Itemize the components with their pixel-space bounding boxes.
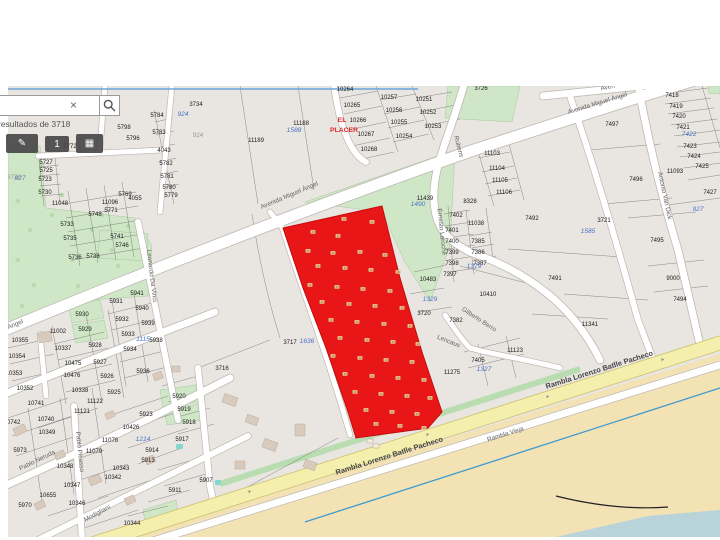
parcel-number: 7425: [695, 164, 709, 170]
map-label: 1490: [411, 201, 426, 208]
parcel-number: 11105: [492, 178, 508, 184]
parcel-number: 7400: [445, 239, 459, 245]
tree-marker: 49: [306, 249, 311, 253]
svg-text:49: 49: [373, 304, 377, 308]
tree-marker: 49: [316, 264, 321, 268]
parcel-number: 5723: [38, 177, 52, 183]
svg-text:49: 49: [410, 360, 414, 364]
parcel-number: 10347: [64, 483, 81, 489]
map-label: 927: [692, 206, 703, 213]
svg-text:49: 49: [343, 266, 347, 270]
tree: [16, 258, 20, 262]
tree-marker: 49: [353, 390, 358, 394]
tree-marker: 49: [373, 304, 378, 308]
parcel-number: 10346: [69, 501, 86, 507]
parcel-number: 5941: [130, 291, 144, 297]
building: [295, 424, 305, 436]
parcel-number: 7420: [672, 114, 686, 120]
parcel-number: 10337: [55, 346, 72, 352]
parcel-number: 11103: [484, 151, 500, 157]
parcel-number: 9000: [666, 276, 680, 282]
svg-text:49: 49: [355, 320, 359, 324]
svg-text:49: 49: [353, 390, 357, 394]
parcel-number: 4043: [157, 148, 171, 154]
svg-text:49: 49: [331, 354, 335, 358]
parcel-number: 11096: [102, 200, 119, 206]
building: [172, 366, 180, 372]
svg-text:49: 49: [422, 378, 426, 382]
parcel-number: 5779: [164, 193, 178, 199]
parcel-number: 5735: [63, 236, 77, 242]
tree-marker: 49: [384, 358, 389, 362]
tree-marker: 49: [355, 320, 360, 324]
parcel-number: 11121: [74, 409, 90, 415]
tree-marker: 49: [400, 306, 405, 310]
parcel-number: 5796: [126, 136, 140, 142]
tree: [32, 283, 36, 287]
parcel-number: 5781: [160, 174, 174, 180]
map-label: 7422: [682, 131, 697, 138]
parcel-number: 10342: [105, 475, 122, 481]
svg-text:49: 49: [415, 412, 419, 416]
svg-text:49: 49: [311, 230, 315, 234]
tree-marker: 49: [365, 338, 370, 342]
svg-text:49: 49: [396, 270, 400, 274]
parcel-number: 11123: [507, 348, 523, 354]
parcel-number: 7386: [471, 250, 485, 256]
tree: [50, 213, 54, 217]
parcel-number: 5936: [136, 369, 150, 375]
parcel-number: 3716: [215, 366, 229, 372]
map-label: EL: [338, 117, 347, 124]
tree-marker: 49: [358, 250, 363, 254]
parcel-number: 10410: [480, 292, 497, 298]
parcel-number: 11038: [468, 221, 485, 227]
svg-text:49: 49: [358, 250, 362, 254]
tree-marker: 49: [391, 340, 396, 344]
svg-text:49: 49: [331, 251, 335, 255]
tree-marker: 49: [382, 322, 387, 326]
map-container[interactable]: 4949494949494949494949494949494949494949…: [8, 86, 720, 537]
search-button[interactable]: [99, 95, 120, 116]
tree-marker: 49: [383, 253, 388, 257]
parcel-number: 5913: [141, 458, 155, 464]
tree-marker: 49: [370, 374, 375, 378]
parcel-number: 10255: [391, 120, 408, 126]
parcel-number: 7382: [449, 318, 463, 324]
svg-text:49: 49: [316, 264, 320, 268]
tree-marker: 49: [428, 396, 433, 400]
tree-marker: 49: [361, 287, 366, 291]
search-results-count: resultados de 3718: [0, 119, 120, 129]
parcel-number: 7401: [445, 228, 459, 234]
parcel-number: 5938: [149, 338, 163, 344]
map[interactable]: 4949494949494949494949494949494949494949…: [8, 86, 720, 537]
parcel-number: 5930: [75, 312, 89, 318]
svg-text:49: 49: [369, 268, 373, 272]
app-window: 4949494949494949494949494949494949494949…: [0, 0, 720, 540]
tree-marker: 49: [396, 270, 401, 274]
parcel-number: 10352: [17, 386, 34, 392]
svg-text:49: 49: [308, 283, 312, 287]
tree-marker: 49: [320, 300, 325, 304]
svg-text:49: 49: [422, 426, 426, 430]
tree: [110, 248, 114, 252]
parcel-number: 11079: [86, 449, 103, 455]
parcel-number: 5733: [60, 222, 74, 228]
tree: [16, 199, 20, 203]
tree-marker: 49: [343, 266, 348, 270]
tree-marker: 49: [370, 220, 375, 224]
parcel-number: 10476: [64, 373, 81, 379]
parcel-number: 5919: [177, 407, 191, 413]
svg-text:49: 49: [320, 300, 324, 304]
parcel-number: 3734: [189, 102, 203, 108]
parcel-number: 5926: [100, 374, 114, 380]
tree-marker: 49: [405, 394, 410, 398]
tree-marker: 49: [347, 302, 352, 306]
svg-text:49: 49: [374, 422, 378, 426]
parcel-number: 10426: [123, 425, 140, 431]
parcel-number: 5730: [38, 190, 52, 196]
edit-tool-button[interactable]: ✎: [6, 134, 38, 153]
parcel-number: 11078: [102, 438, 119, 444]
map-label: 1588: [287, 127, 302, 134]
parcel-number: 5727: [39, 160, 53, 166]
parcel-number: 5748: [88, 212, 102, 218]
tree-marker: 49: [336, 234, 341, 238]
tree-marker: 49: [408, 324, 413, 328]
parcel-number: 5780: [162, 185, 176, 191]
parcel-number: 10257: [381, 95, 398, 101]
svg-text:49: 49: [338, 336, 342, 340]
parcel-number: 5771: [104, 208, 118, 214]
parcel-number: 11341: [582, 322, 599, 328]
parcel-number: 5914: [145, 448, 159, 454]
parcel-number: 5907: [199, 478, 213, 484]
svg-text:49: 49: [347, 302, 351, 306]
parcel-number: 5782: [159, 161, 173, 167]
parcel-number: 7419: [669, 104, 683, 110]
parcel-number: 7385: [471, 239, 485, 245]
map-label: 1379: [467, 263, 482, 270]
building: [235, 461, 245, 469]
tree-marker: 49: [422, 378, 427, 382]
parcel-number: 5931: [109, 299, 123, 305]
map-label: 1636: [300, 338, 315, 345]
pool: [215, 480, 221, 485]
parcel-number: 10742: [8, 420, 21, 426]
svg-text:49: 49: [408, 324, 412, 328]
tree-marker: 49: [390, 410, 395, 414]
parcel-number: 10264: [337, 87, 354, 93]
parcel-number: 10348: [57, 464, 74, 470]
parcel-number: 10254: [396, 134, 413, 140]
parcel-number: 5929: [78, 327, 92, 333]
svg-text:49: 49: [379, 392, 383, 396]
svg-text:49: 49: [405, 394, 409, 398]
map-label: 1115: [136, 336, 150, 343]
tree-marker: 49: [410, 360, 415, 364]
map-label: PLACER: [330, 127, 358, 134]
tree-marker: 49: [398, 424, 403, 428]
parcel-number: 10344: [124, 521, 141, 527]
tree-marker: 49: [364, 408, 369, 412]
parcel-number: 10349: [39, 430, 56, 436]
svg-text:49: 49: [390, 410, 394, 414]
parcel-number: 3720: [417, 311, 431, 317]
svg-text:49: 49: [400, 306, 404, 310]
svg-text:49: 49: [416, 342, 420, 346]
parcel-number: 5939: [141, 321, 155, 327]
parcel-number: 10252: [420, 110, 437, 116]
tree: [28, 228, 32, 232]
svg-text:49: 49: [342, 217, 346, 221]
parcel-number: 5973: [13, 448, 27, 454]
tree-marker: 49: [311, 230, 316, 234]
parcel-number: 10475: [65, 361, 82, 367]
svg-text:49: 49: [391, 340, 395, 344]
parcel-number: 7495: [650, 238, 664, 244]
tree-marker: 49: [374, 422, 379, 426]
tree: [60, 193, 64, 197]
tree-marker: 49: [379, 392, 384, 396]
parcel-number: 5928: [88, 343, 102, 349]
tree: [126, 224, 130, 228]
parcel-number: 5927: [93, 360, 107, 366]
tree: [20, 304, 24, 308]
svg-text:49: 49: [398, 424, 402, 428]
parcel-number: 10740: [38, 417, 55, 423]
parcel-number: 3726: [474, 86, 488, 92]
pencil-icon: ✎: [18, 138, 26, 149]
svg-text:49: 49: [383, 253, 387, 257]
svg-text:49: 49: [364, 408, 368, 412]
parcel-number: 7402: [449, 213, 463, 219]
tree-marker: 49: [396, 376, 401, 380]
parcel-number: 11122: [87, 399, 103, 405]
parcel-number: 5784: [150, 113, 164, 119]
svg-text:49: 49: [382, 322, 386, 326]
tree-marker: 49: [358, 356, 363, 360]
parcel-number: 10655: [40, 493, 57, 499]
parcel-number: 7405: [471, 358, 485, 364]
tree-marker: 49: [415, 412, 420, 416]
parcel-number: 7398: [445, 261, 459, 267]
svg-text:49: 49: [361, 287, 365, 291]
tree-marker: 49: [331, 251, 336, 255]
page-indicator-button[interactable]: 1: [45, 136, 69, 152]
svg-text:49: 49: [343, 372, 347, 376]
parcel-number: 7418: [665, 93, 679, 99]
parcel-number: 7492: [525, 216, 539, 222]
map-label: 924: [193, 132, 204, 139]
parcel-number: 10253: [425, 124, 442, 130]
parcel-number: 11275: [444, 370, 461, 376]
map-label: 1327: [477, 366, 492, 373]
tree-marker: 49: [329, 318, 334, 322]
parcel-number: 10266: [350, 118, 367, 124]
map-label: 3736: [8, 174, 22, 181]
parcel-number: 10256: [386, 108, 403, 114]
tree-marker: 49: [343, 372, 348, 376]
map-label: 1585: [581, 228, 596, 235]
parcel-number: 5933: [121, 332, 135, 338]
parcel-number: 7427: [703, 190, 717, 196]
parcel-number: 10741: [28, 401, 45, 407]
svg-text:49: 49: [370, 220, 374, 224]
tree-marker: 49: [416, 342, 421, 346]
search-icon: [103, 99, 116, 112]
parcel-number: 5741: [110, 234, 124, 240]
parcel-number: 5932: [115, 317, 129, 323]
tree-marker: 49: [342, 217, 347, 221]
svg-text:49: 49: [329, 318, 333, 322]
parcel-number: 10338: [72, 388, 89, 394]
pool: [176, 444, 183, 449]
parcel-number: 11048: [52, 201, 69, 207]
svg-text:49: 49: [358, 356, 362, 360]
parcel-number: 10483: [420, 277, 437, 283]
parcel-number: 7491: [548, 276, 562, 282]
parcel-number: 10251: [416, 97, 433, 103]
tree-marker: 49: [388, 289, 393, 293]
parcel-number: 5746: [115, 243, 129, 249]
parcel-number: 4055: [128, 196, 142, 202]
parcel-number: 10267: [358, 132, 375, 138]
parcel-number: 5783: [152, 130, 166, 136]
tree-marker: 49: [369, 268, 374, 272]
map-label: 924: [177, 111, 188, 118]
tree-marker: 49: [308, 283, 313, 287]
parcel-number: 10353: [8, 371, 23, 377]
tree-marker: 49: [422, 426, 427, 430]
parcel-number: 5940: [135, 306, 149, 312]
parcel-number: 5925: [107, 390, 121, 396]
svg-text:49: 49: [384, 358, 388, 362]
parcel-number: 7397: [443, 272, 457, 278]
search-input[interactable]: [0, 95, 99, 116]
parcel-number: 7494: [673, 297, 687, 303]
parcel-number: 5736: [68, 255, 82, 261]
parcel-number: 3717: [283, 340, 297, 346]
svg-text:49: 49: [428, 396, 432, 400]
parcel-number: 5923: [139, 412, 153, 418]
parcel-number: 5934: [123, 347, 137, 353]
parcel-number: 10354: [9, 354, 26, 360]
parcel-number: 7423: [683, 144, 697, 150]
parcel-number: 7496: [629, 177, 643, 183]
svg-text:49: 49: [365, 338, 369, 342]
parcel-number: 7497: [605, 122, 619, 128]
parcel-number: 5917: [175, 437, 189, 443]
parcel-number: 7424: [687, 154, 701, 160]
tree-marker: 49: [335, 285, 340, 289]
page-number: 1: [54, 139, 60, 150]
parcel-number: 11093: [667, 169, 684, 175]
parcel-number: 8328: [463, 199, 477, 205]
parcel-number: 11106: [496, 190, 512, 196]
parcel-number: 5725: [39, 168, 53, 174]
parcels-tool-button[interactable]: ▦: [76, 134, 103, 153]
grid-icon: ▦: [85, 138, 94, 149]
map-label: 1329: [423, 296, 438, 303]
tree: [76, 284, 80, 288]
tree: [116, 264, 120, 268]
parcel-number: 10268: [361, 147, 378, 153]
parcel-number: 5970: [18, 503, 32, 509]
parcel-number: 10265: [344, 103, 361, 109]
parcel-number: 11189: [248, 138, 264, 144]
clear-search-icon[interactable]: ×: [70, 98, 77, 112]
parcel-number: 11002: [50, 329, 67, 335]
tree-marker: 49: [331, 354, 336, 358]
map-label: 1214: [136, 436, 151, 443]
parcel-number: 10343: [113, 466, 130, 472]
svg-text:49: 49: [396, 376, 400, 380]
parcel-number: 5911: [169, 488, 183, 494]
svg-text:49: 49: [306, 249, 310, 253]
search-panel: × resultados de 3718 ✎ 1 ▦: [0, 95, 120, 153]
parcel-number: 3721: [597, 218, 611, 224]
parcel-number: 5920: [172, 394, 186, 400]
parcel-number: 10355: [12, 338, 29, 344]
parcel-number: 5738: [86, 254, 100, 260]
svg-text:49: 49: [336, 234, 340, 238]
parcel-number: 11104: [489, 166, 505, 172]
svg-text:49: 49: [335, 285, 339, 289]
svg-text:49: 49: [370, 374, 374, 378]
tree-marker: 49: [338, 336, 343, 340]
svg-text:49: 49: [388, 289, 392, 293]
parcel-number: 5918: [182, 420, 196, 426]
